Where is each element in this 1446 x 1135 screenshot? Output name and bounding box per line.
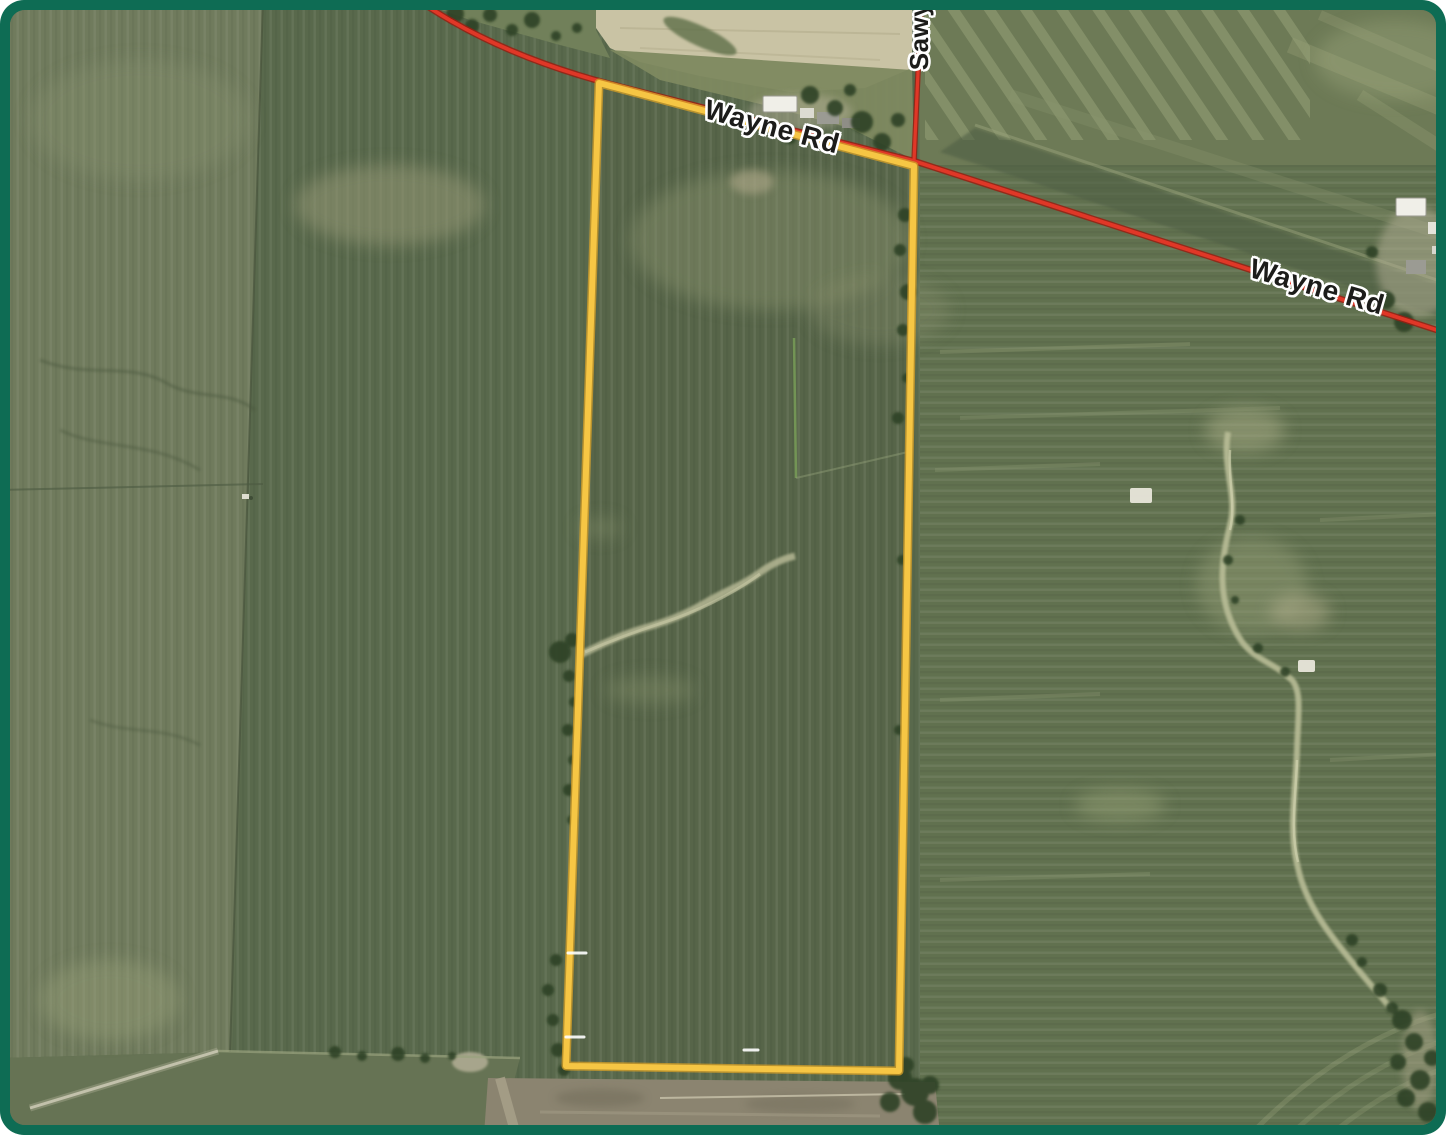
map-frame-border: Wayne Rd Wayne Rd Sawy	[0, 0, 1446, 1135]
satellite-map-canvas[interactable]: Wayne Rd Wayne Rd Sawy	[10, 10, 1436, 1125]
map-content: Wayne Rd Wayne Rd Sawy	[10, 10, 1436, 1125]
map-window: Wayne Rd Wayne Rd Sawy	[0, 0, 1446, 1135]
road-label-sawyer-rd-partial: Sawy	[906, 10, 932, 70]
aerial-imagery	[10, 10, 1436, 1125]
